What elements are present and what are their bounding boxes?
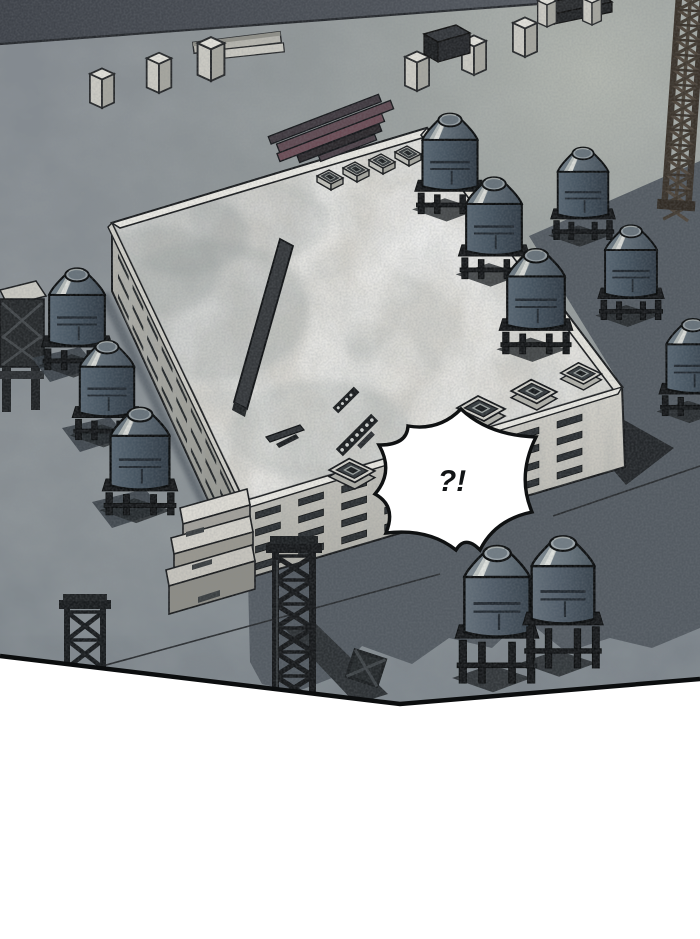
svg-text:?!: ?! [438, 465, 466, 498]
